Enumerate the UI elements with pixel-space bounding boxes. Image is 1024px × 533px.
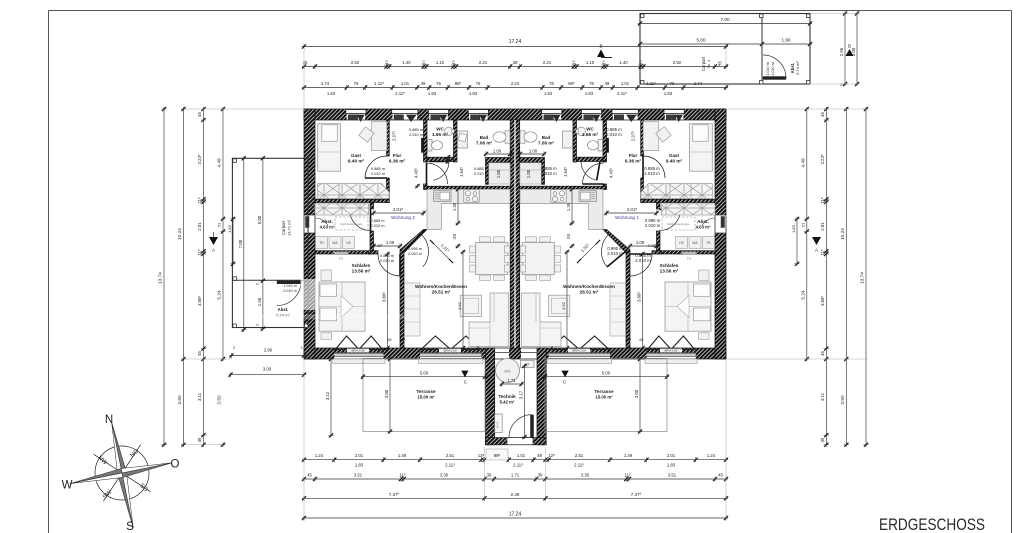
svg-text:.93: .93: [566, 233, 571, 240]
svg-text:76: 76: [670, 81, 675, 86]
svg-text:9.40 m²: 9.40 m²: [348, 159, 365, 164]
svg-text:2.010 m: 2.010 m: [771, 62, 775, 75]
svg-text:N: N: [105, 414, 113, 426]
svg-text:4.63 m²: 4.63 m²: [320, 225, 335, 230]
svg-text:39: 39: [197, 437, 202, 442]
svg-text:Wohnen/Kochen/Essen: Wohnen/Kochen/Essen: [415, 284, 467, 289]
svg-text:1.00: 1.00: [526, 169, 531, 178]
svg-text:2.96: 2.96: [264, 348, 273, 353]
svg-text:49: 49: [605, 81, 610, 86]
svg-text:W+S: W+S: [496, 422, 500, 428]
svg-text:1.71: 1.71: [507, 378, 516, 383]
svg-text:2: 2: [301, 346, 303, 350]
svg-text:2.010 m: 2.010 m: [409, 132, 423, 137]
svg-text:W: W: [62, 480, 73, 492]
svg-text:S: S: [126, 521, 134, 533]
svg-text:13.74: 13.74: [860, 272, 865, 284]
svg-text:Bad: Bad: [480, 135, 489, 140]
svg-text:BRH 0.00: BRH 0.00: [443, 349, 456, 353]
svg-text:1.83: 1.83: [469, 91, 478, 96]
svg-text:1.74: 1.74: [321, 81, 330, 86]
svg-text:14.71 m²: 14.71 m²: [287, 219, 292, 235]
svg-text:5.42 m²: 5.42 m²: [500, 400, 515, 405]
svg-text:3.11: 3.11: [197, 392, 202, 401]
svg-text:1.00: 1.00: [529, 149, 538, 154]
svg-text:.93: .93: [452, 233, 457, 240]
svg-text:45: 45: [820, 112, 825, 117]
svg-text:9.40 m²: 9.40 m²: [666, 159, 683, 164]
svg-text:1.40: 1.40: [619, 60, 628, 65]
svg-text:5.00: 5.00: [257, 215, 262, 224]
svg-text:45: 45: [820, 351, 825, 356]
svg-text:2.51: 2.51: [575, 453, 584, 458]
svg-text:3.17: 3.17: [519, 390, 524, 399]
svg-text:2: 2: [840, 83, 842, 87]
svg-text:Carport: Carport: [281, 220, 286, 235]
svg-text:39: 39: [820, 437, 825, 442]
svg-text:1.00: 1.00: [496, 169, 501, 178]
svg-text:1.96: 1.96: [781, 38, 791, 43]
svg-text:2.010 m: 2.010 m: [380, 258, 394, 263]
svg-text:TV: TV: [687, 257, 692, 261]
svg-text:39: 39: [538, 473, 543, 478]
svg-text:WC: WC: [586, 127, 594, 132]
svg-text:2.96: 2.96: [839, 47, 844, 56]
svg-text:WA: WA: [332, 241, 338, 245]
svg-text:2.010 m: 2.010 m: [645, 223, 661, 228]
svg-text:1.66 m²: 1.66 m²: [582, 132, 599, 137]
svg-text:3.30: 3.30: [581, 473, 590, 478]
svg-text:49: 49: [537, 453, 542, 458]
svg-text:2.010 m: 2.010 m: [370, 223, 384, 228]
svg-text:2.010 m: 2.010 m: [408, 251, 422, 256]
svg-text:1.66 m²: 1.66 m²: [432, 132, 449, 137]
svg-text:5.24: 5.24: [800, 290, 805, 300]
svg-text:TR: TR: [706, 241, 711, 245]
svg-text:3.50: 3.50: [177, 395, 182, 405]
svg-text:5.74 m²: 5.74 m²: [795, 61, 800, 75]
svg-text:39: 39: [513, 60, 518, 65]
svg-text:.65: .65: [639, 338, 644, 342]
svg-text:1.49: 1.49: [398, 453, 407, 458]
svg-text:3.51: 3.51: [354, 473, 363, 478]
svg-text:Flur: Flur: [393, 153, 402, 158]
svg-text:Dachbodentreppe: Dachbodentreppe: [340, 222, 363, 226]
svg-text:2.010 m: 2.010 m: [644, 171, 660, 176]
svg-text:2.24: 2.24: [511, 81, 520, 86]
svg-text:1.01: 1.01: [517, 453, 526, 458]
svg-text:45: 45: [197, 112, 202, 117]
svg-text:2.01: 2.01: [355, 453, 364, 458]
svg-text:7.06 m²: 7.06 m²: [476, 141, 493, 146]
svg-text:76: 76: [589, 81, 594, 86]
svg-text:3.51: 3.51: [668, 473, 677, 478]
svg-text:1.83: 1.83: [667, 463, 676, 468]
svg-text:5.00: 5.00: [420, 371, 429, 376]
svg-text:2.010 m: 2.010 m: [607, 251, 623, 256]
svg-text:1.24: 1.24: [315, 453, 324, 458]
svg-text:5.00: 5.00: [602, 371, 611, 376]
svg-text:2: 2: [233, 346, 235, 350]
svg-text:7.00: 7.00: [720, 17, 730, 22]
svg-text:1.96: 1.96: [257, 297, 262, 306]
svg-text:2.92: 2.92: [351, 60, 360, 65]
svg-text:6.36 m²: 6.36 m²: [389, 159, 406, 164]
svg-text:1.39: 1.39: [452, 202, 457, 211]
svg-text:1.83: 1.83: [327, 91, 336, 96]
svg-text:3.00: 3.00: [263, 367, 272, 372]
svg-text:WA: WA: [692, 241, 698, 245]
svg-text:1.01: 1.01: [621, 81, 630, 86]
svg-text:3.92: 3.92: [457, 301, 462, 310]
svg-text:5.00: 5.00: [696, 38, 706, 43]
svg-text:Abst.: Abst.: [278, 307, 289, 312]
svg-text:10.24: 10.24: [177, 228, 182, 240]
svg-text:2.01: 2.01: [820, 222, 825, 231]
svg-text:1.40: 1.40: [402, 60, 411, 65]
svg-text:15.00 m²: 15.00 m²: [417, 395, 435, 400]
svg-text:2.49: 2.49: [511, 492, 520, 497]
svg-text:BRH 0.85: BRH 0.85: [664, 349, 677, 353]
svg-text:45: 45: [303, 60, 308, 65]
svg-text:2.010 m: 2.010 m: [371, 171, 385, 176]
svg-text:BRH 0.00: BRH 0.00: [572, 349, 585, 353]
svg-text:45: 45: [307, 473, 312, 478]
svg-text:6.36 m²: 6.36 m²: [625, 159, 642, 164]
svg-text:1.83: 1.83: [428, 91, 437, 96]
svg-text:B: B: [848, 44, 851, 49]
svg-text:2.010 m: 2.010 m: [474, 171, 488, 176]
svg-text:Gast: Gast: [351, 153, 362, 158]
svg-text:1.010 m: 1.010 m: [283, 284, 296, 288]
svg-text:2.010 m: 2.010 m: [283, 289, 296, 293]
svg-text:WS: WS: [504, 369, 511, 374]
svg-text:1.71: 1.71: [511, 473, 520, 478]
svg-text:3.50: 3.50: [840, 395, 845, 405]
svg-text:Flur: Flur: [629, 153, 638, 158]
svg-text:Abst.: Abst.: [321, 219, 333, 224]
svg-text:Abst.: Abst.: [697, 219, 709, 224]
svg-text:76: 76: [549, 81, 554, 86]
svg-text:1.01: 1.01: [401, 81, 410, 86]
svg-text:2.010 m: 2.010 m: [541, 171, 557, 176]
svg-text:1.83: 1.83: [585, 91, 594, 96]
svg-text:45: 45: [718, 473, 723, 478]
svg-text:Wohnung 1: Wohnung 1: [615, 215, 639, 220]
svg-text:1.09: 1.09: [386, 240, 395, 245]
svg-text:Schlafen: Schlafen: [352, 263, 371, 268]
svg-text:7.00: 7.00: [238, 239, 243, 248]
svg-text:1.00: 1.00: [493, 149, 502, 154]
svg-text:76: 76: [476, 81, 481, 86]
svg-text:4.49: 4.49: [217, 158, 222, 168]
svg-text:1.39: 1.39: [566, 202, 571, 211]
svg-text:3.12: 3.12: [325, 391, 330, 400]
svg-text:TR: TR: [319, 241, 324, 245]
svg-text:1.10: 1.10: [436, 60, 445, 65]
svg-text:26.51 m²: 26.51 m²: [432, 290, 451, 295]
svg-text:2.01: 2.01: [667, 453, 676, 458]
svg-text:A: A: [212, 248, 215, 253]
svg-text:1.83: 1.83: [544, 91, 553, 96]
svg-text:3.00: 3.00: [384, 389, 389, 398]
svg-text:76: 76: [354, 81, 359, 86]
svg-text:1.83: 1.83: [664, 91, 673, 96]
svg-text:2.51: 2.51: [446, 453, 455, 458]
svg-text:B: B: [599, 44, 602, 49]
svg-text:2.92: 2.92: [673, 60, 682, 65]
svg-text:2: 2: [256, 283, 260, 285]
svg-text:1.83: 1.83: [227, 224, 232, 233]
svg-text:3.30: 3.30: [440, 473, 449, 478]
svg-text:1.09: 1.09: [636, 240, 645, 245]
svg-text:1.49: 1.49: [624, 453, 633, 458]
svg-text:2.21: 2.21: [543, 60, 552, 65]
svg-text:1.10: 1.10: [586, 60, 595, 65]
svg-text:Technik: Technik: [498, 394, 516, 399]
svg-text:76: 76: [436, 81, 441, 86]
svg-text:3.50: 3.50: [217, 395, 222, 405]
svg-text:2.01: 2.01: [197, 222, 202, 231]
svg-text:Wohnung 2: Wohnung 2: [391, 215, 415, 220]
svg-text:Dachbodentreppe: Dachbodentreppe: [667, 222, 690, 226]
svg-text:17.24: 17.24: [509, 512, 522, 518]
svg-text:13.56 m²: 13.56 m²: [660, 269, 679, 274]
svg-text:Bad: Bad: [542, 135, 551, 140]
svg-text:Terrasse: Terrasse: [594, 389, 614, 394]
svg-text:Nr. 1: Nr. 1: [706, 59, 711, 68]
svg-text:WC: WC: [436, 127, 444, 132]
svg-text:7.06 m²: 7.06 m²: [538, 141, 555, 146]
svg-text:49: 49: [421, 81, 426, 86]
svg-text:A: A: [815, 248, 818, 253]
svg-text:51: 51: [800, 222, 805, 227]
svg-text:13.56 m²: 13.56 m²: [352, 269, 371, 274]
svg-text:2: 2: [256, 324, 260, 326]
svg-text:3.11: 3.11: [820, 392, 825, 401]
svg-text:2.010 m: 2.010 m: [635, 258, 651, 263]
svg-text:Wohnen/Kochen/Essen: Wohnen/Kochen/Essen: [563, 284, 615, 289]
svg-text:2.010 m: 2.010 m: [606, 132, 622, 137]
svg-text:3.92: 3.92: [561, 301, 566, 310]
svg-text:Schlafen: Schlafen: [660, 263, 679, 268]
svg-text:4.63 m²: 4.63 m²: [696, 225, 711, 230]
svg-text:15.00 m²: 15.00 m²: [595, 395, 613, 400]
svg-text:ERDGESCHOSS: ERDGESCHOSS: [879, 516, 985, 533]
svg-text:26.51 m²: 26.51 m²: [580, 290, 599, 295]
svg-text:1.24: 1.24: [707, 453, 716, 458]
svg-text:1.83: 1.83: [791, 224, 796, 233]
svg-text:5.24: 5.24: [217, 290, 222, 300]
svg-text:17.24: 17.24: [509, 39, 522, 45]
svg-text:Gast: Gast: [669, 153, 680, 158]
svg-text:1.83: 1.83: [355, 463, 364, 468]
svg-text:BRH 0.85: BRH 0.85: [351, 349, 364, 353]
svg-text:TV: TV: [339, 257, 344, 261]
svg-text:Terrasse: Terrasse: [416, 389, 436, 394]
svg-text:10.24: 10.24: [840, 228, 845, 240]
svg-text:O: O: [171, 459, 180, 471]
svg-text:13.74: 13.74: [158, 272, 163, 284]
svg-text:1.010 m: 1.010 m: [766, 62, 770, 75]
svg-text:51: 51: [217, 222, 222, 227]
svg-text:2.21: 2.21: [479, 60, 488, 65]
svg-text:.65: .65: [387, 338, 392, 342]
svg-text:39: 39: [487, 473, 492, 478]
svg-text:3.00: 3.00: [634, 389, 639, 398]
svg-text:1.74: 1.74: [694, 81, 703, 86]
svg-text:4.49: 4.49: [800, 158, 805, 168]
svg-text:45: 45: [197, 351, 202, 356]
